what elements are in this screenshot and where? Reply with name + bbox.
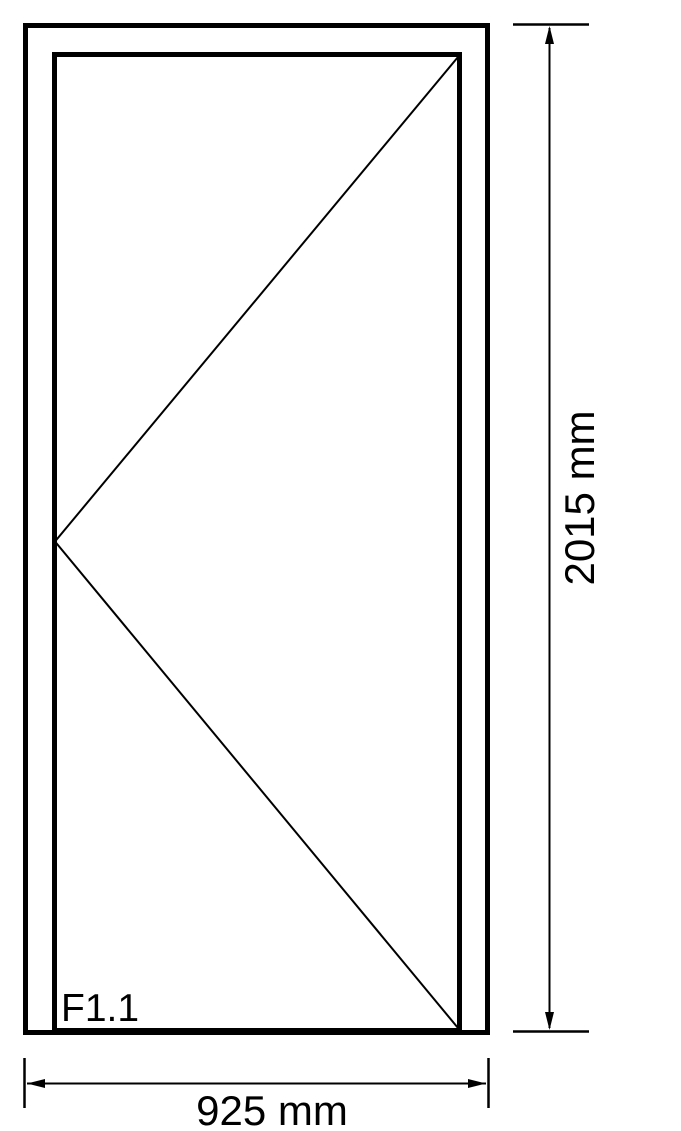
opening-direction-upper-line — [55, 57, 458, 542]
outer-frame — [26, 26, 488, 1033]
width-dimension-label: 925 mm — [196, 1087, 348, 1131]
arrow-up-icon — [545, 26, 554, 44]
door-elevation-drawing: F1.1 2015 mm 925 mm — [0, 0, 681, 1131]
drawing-canvas: F1.1 2015 mm 925 mm — [0, 0, 681, 1131]
arrow-right-icon — [468, 1079, 486, 1088]
width-dimension-group: 925 mm — [25, 1058, 489, 1131]
height-dimension-group: 2015 mm — [513, 25, 603, 1032]
inner-sash-frame — [55, 55, 460, 1031]
arrow-left-icon — [27, 1079, 45, 1088]
opening-direction-lower-line — [55, 542, 458, 1029]
arrow-down-icon — [545, 1012, 554, 1030]
height-dimension-label: 2015 mm — [556, 410, 603, 585]
frame-label: F1.1 — [61, 987, 139, 1030]
